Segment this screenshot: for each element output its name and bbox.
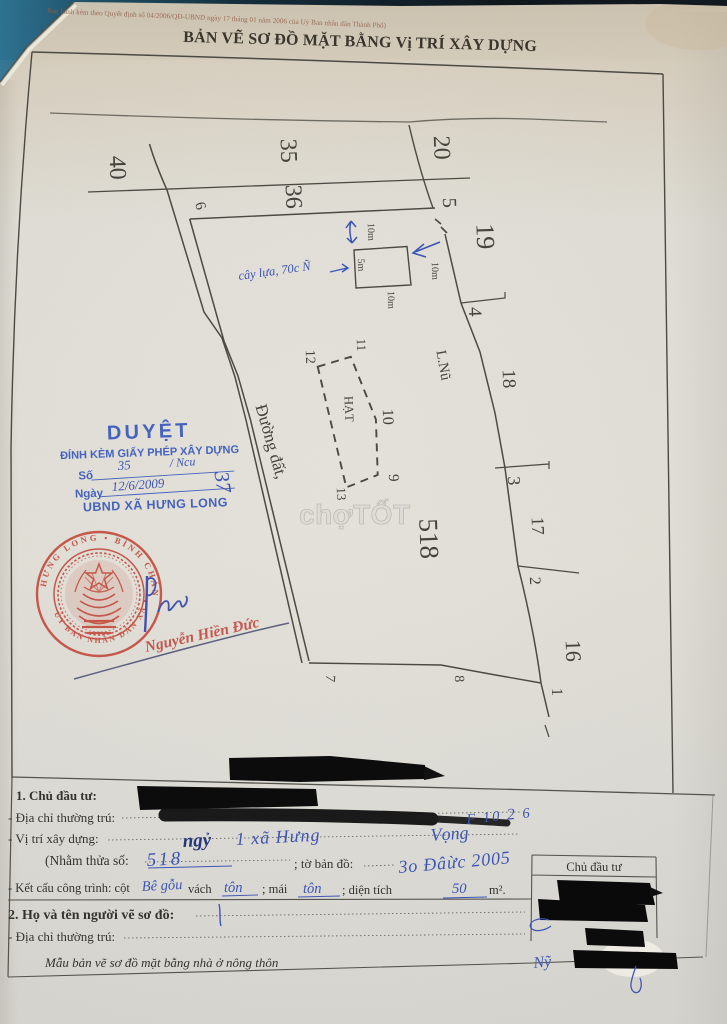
svg-text:Mẫu bản vẽ sơ đồ mặt bằng nhà: Mẫu bản vẽ sơ đồ mặt bằng nhà ở nông thô… <box>44 955 278 970</box>
svg-text:8: 8 <box>451 675 466 683</box>
svg-text:19: 19 <box>470 223 500 250</box>
svg-text:17: 17 <box>528 516 549 535</box>
svg-text:50: 50 <box>452 881 467 897</box>
svg-text:m².: m². <box>489 883 506 897</box>
svg-text:; diện tích: ; diện tích <box>342 883 393 897</box>
svg-text:5m: 5m <box>355 258 366 271</box>
svg-text:tôn: tôn <box>224 880 243 896</box>
svg-text:Vọng: Vọng <box>430 822 469 845</box>
svg-text:(Nhằm thửa số:: (Nhằm thửa số: <box>45 853 129 868</box>
svg-text:10: 10 <box>379 409 397 426</box>
svg-text:35: 35 <box>116 457 132 473</box>
svg-text:12: 12 <box>302 350 317 365</box>
svg-text:3: 3 <box>504 476 524 486</box>
svg-text:; tờ bản đồ:: ; tờ bản đồ: <box>294 856 353 871</box>
svg-text:Số: Số <box>78 470 93 483</box>
svg-text:40: 40 <box>104 155 131 180</box>
svg-text:1. Chủ đầu tư:: 1. Chủ đầu tư: <box>16 788 97 803</box>
svg-text:- Vị trí xây dựng:: - Vị trí xây dựng: <box>8 831 99 846</box>
svg-text:35: 35 <box>275 138 302 163</box>
svg-text:10m: 10m <box>429 262 441 280</box>
svg-text:Ngày: Ngày <box>75 488 104 501</box>
svg-text:; mái: ; mái <box>262 882 288 896</box>
svg-text:2. Họ và tên người vẽ sơ đồ:: 2. Họ và tên người vẽ sơ đồ: <box>8 908 174 923</box>
svg-text:- Địa chỉ thường trú:: - Địa chỉ thường trú: <box>8 810 115 825</box>
svg-text:tôn: tôn <box>303 881 322 897</box>
svg-text:4: 4 <box>464 307 485 318</box>
svg-text:Chủ đầu tư: Chủ đầu tư <box>566 860 623 874</box>
svg-text:20: 20 <box>428 135 455 160</box>
svg-text:18: 18 <box>498 369 520 389</box>
svg-text:ngỷ: ngỷ <box>182 830 212 852</box>
svg-text:5: 5 <box>438 197 460 208</box>
svg-text:7: 7 <box>322 674 338 682</box>
svg-text:- Địa chỉ thường trú:: - Địa chỉ thường trú: <box>8 929 115 944</box>
svg-text:16: 16 <box>561 639 587 662</box>
svg-text:10m: 10m <box>385 291 397 309</box>
svg-text:9: 9 <box>385 474 401 482</box>
svg-text:/ Ncu: / Ncu <box>168 454 196 470</box>
svg-text:11: 11 <box>354 338 369 351</box>
svg-text:36: 36 <box>280 184 307 209</box>
svg-text:vách: vách <box>188 882 212 896</box>
svg-text:HẠT: HẠT <box>342 396 357 423</box>
svg-text:Bê gỗu: Bê gỗu <box>141 877 182 895</box>
svg-text:2: 2 <box>526 577 543 586</box>
svg-text:1: 1 <box>548 688 565 697</box>
svg-text:DUYỆT: DUYỆT <box>107 418 192 445</box>
svg-text:Nỹ: Nỹ <box>532 953 553 972</box>
svg-text:10m: 10m <box>365 223 377 241</box>
svg-text:- Kết cấu công trình: cột: - Kết cấu công trình: cột <box>8 881 130 895</box>
svg-text:518: 518 <box>413 518 444 560</box>
svg-text:chợTỐT: chợTỐT <box>299 498 411 530</box>
